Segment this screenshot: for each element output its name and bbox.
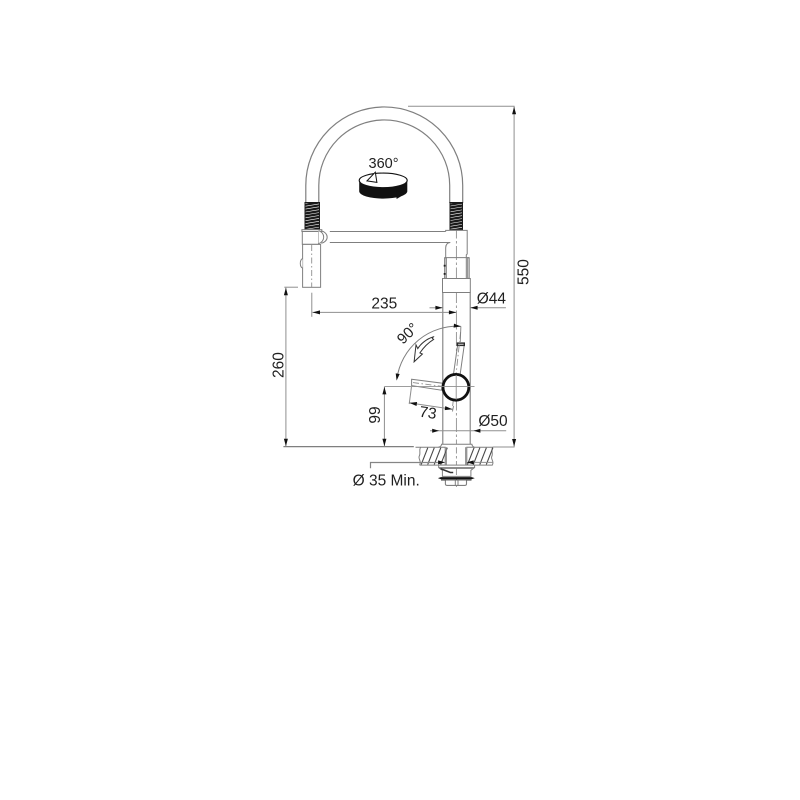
svg-text:73: 73 xyxy=(418,404,438,423)
svg-text:Ø44: Ø44 xyxy=(477,291,507,308)
svg-text:360°: 360° xyxy=(369,156,399,172)
svg-text:Ø 35 Min.: Ø 35 Min. xyxy=(353,472,420,489)
svg-text:550: 550 xyxy=(515,259,532,285)
svg-text:Ø50: Ø50 xyxy=(478,413,508,430)
svg-text:99: 99 xyxy=(367,406,384,423)
svg-text:235: 235 xyxy=(371,296,397,313)
svg-text:260: 260 xyxy=(270,352,287,378)
